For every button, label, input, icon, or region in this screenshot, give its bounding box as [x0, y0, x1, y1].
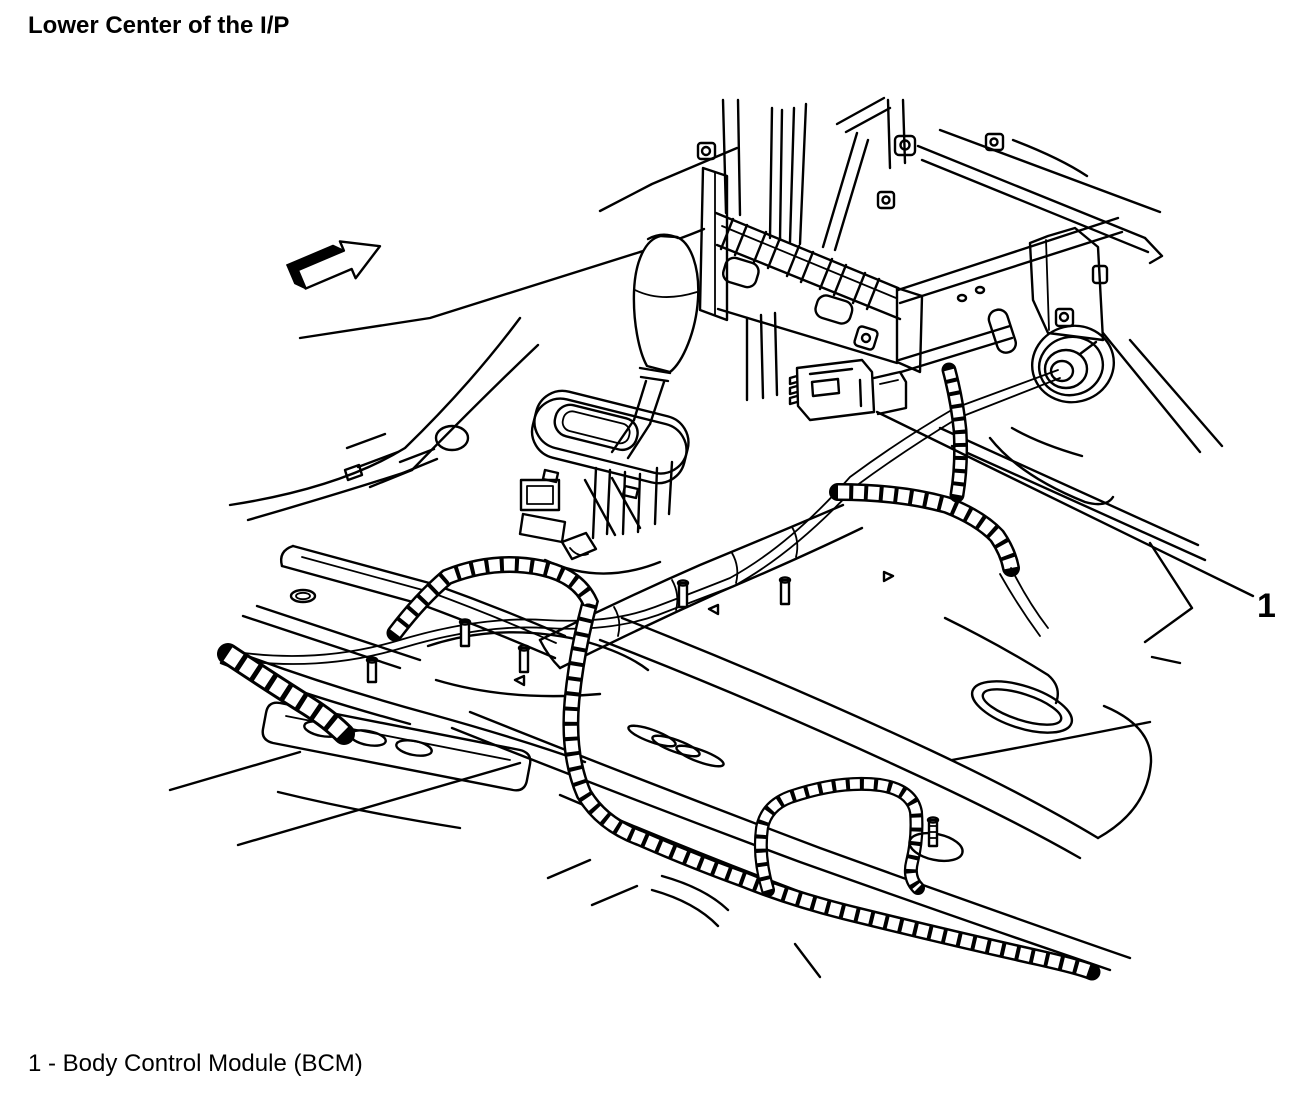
floor-oval-hole — [966, 671, 1078, 743]
stud — [460, 619, 470, 646]
mount-plate — [263, 703, 531, 791]
harness-right — [838, 492, 1048, 636]
harness-left — [228, 654, 344, 734]
legend: 1 - Body Control Module (BCM) — [28, 1050, 363, 1078]
firewall-grommet — [1024, 317, 1122, 411]
callout-1-label: 1 — [1257, 587, 1276, 625]
bcm-connector — [790, 360, 906, 420]
shifter-assembly — [520, 235, 698, 574]
stud — [519, 645, 529, 672]
legend-item-1: 1 - Body Control Module (BCM) — [28, 1050, 363, 1077]
stud — [780, 577, 790, 604]
shifter-knob — [634, 236, 698, 372]
callout-1: 1 — [877, 412, 1276, 625]
stud — [678, 580, 688, 607]
service-manual-figure: Lower Center of the I/P — [0, 0, 1312, 1110]
bcm-location-diagram: 1 — [0, 0, 1312, 1110]
forward-direction-arrow-icon — [287, 228, 388, 301]
stud — [367, 657, 377, 682]
